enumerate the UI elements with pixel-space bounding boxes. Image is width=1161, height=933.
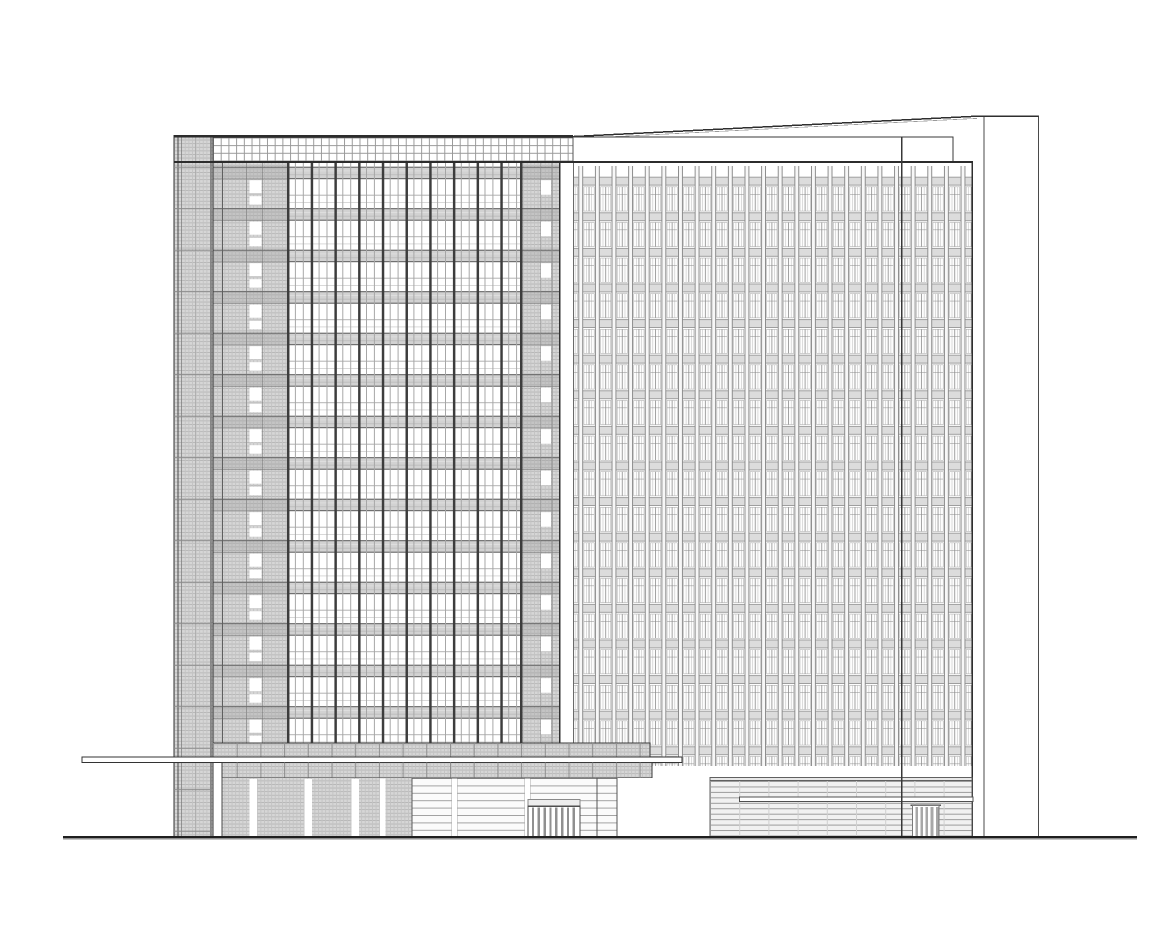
tower-top-cap: [174, 135, 573, 137]
ground-line: [63, 836, 1137, 839]
masonry-pier: [174, 135, 213, 838]
service-door: [911, 805, 942, 839]
curtain-wall: [287, 162, 522, 743]
strip-joint-5: [552, 162, 553, 743]
curtain-wall-end-mullion: [520, 162, 522, 743]
canopy: [82, 743, 682, 778]
canopy-slab: [82, 757, 682, 763]
right-facade-right-edge: [972, 162, 974, 838]
entrance-lintel: [528, 800, 580, 807]
strip-joint-3: [262, 162, 263, 743]
sloped-roofline: [572, 116, 1039, 136]
right-facade-fin-grid: [573, 177, 973, 767]
facade-top-line: [174, 161, 973, 163]
tower-right-edge: [559, 162, 561, 743]
elevation-drawing: [0, 0, 1161, 933]
canopy-fascia-joints: [222, 763, 652, 778]
strip-joint-4: [540, 162, 541, 743]
window-slot-column-right: [541, 162, 551, 743]
sloped-roofline-inner: [572, 118, 977, 138]
right-end-wall: [984, 116, 1039, 838]
window-slot-column-left: [249, 162, 262, 743]
thin-canopy-bar: [740, 797, 974, 801]
expansion-joint: [901, 137, 903, 838]
podium-pier-right: [597, 778, 617, 838]
ground: [63, 836, 1137, 840]
roof-grid-band: [213, 138, 573, 163]
main-entrance: [528, 800, 580, 838]
strip-joint-2: [246, 162, 247, 743]
right-facade-fin-stubs: [573, 166, 973, 177]
right-wing-parapet: [567, 137, 953, 162]
right-facade-left-edge: [573, 162, 574, 766]
podium-piers: [222, 778, 412, 838]
right-wing: [567, 116, 1039, 838]
ground-shadow-line: [63, 839, 1137, 840]
strip-joint-1: [222, 162, 223, 743]
elevation-svg: [0, 0, 1161, 933]
entrance-door: [528, 806, 580, 838]
